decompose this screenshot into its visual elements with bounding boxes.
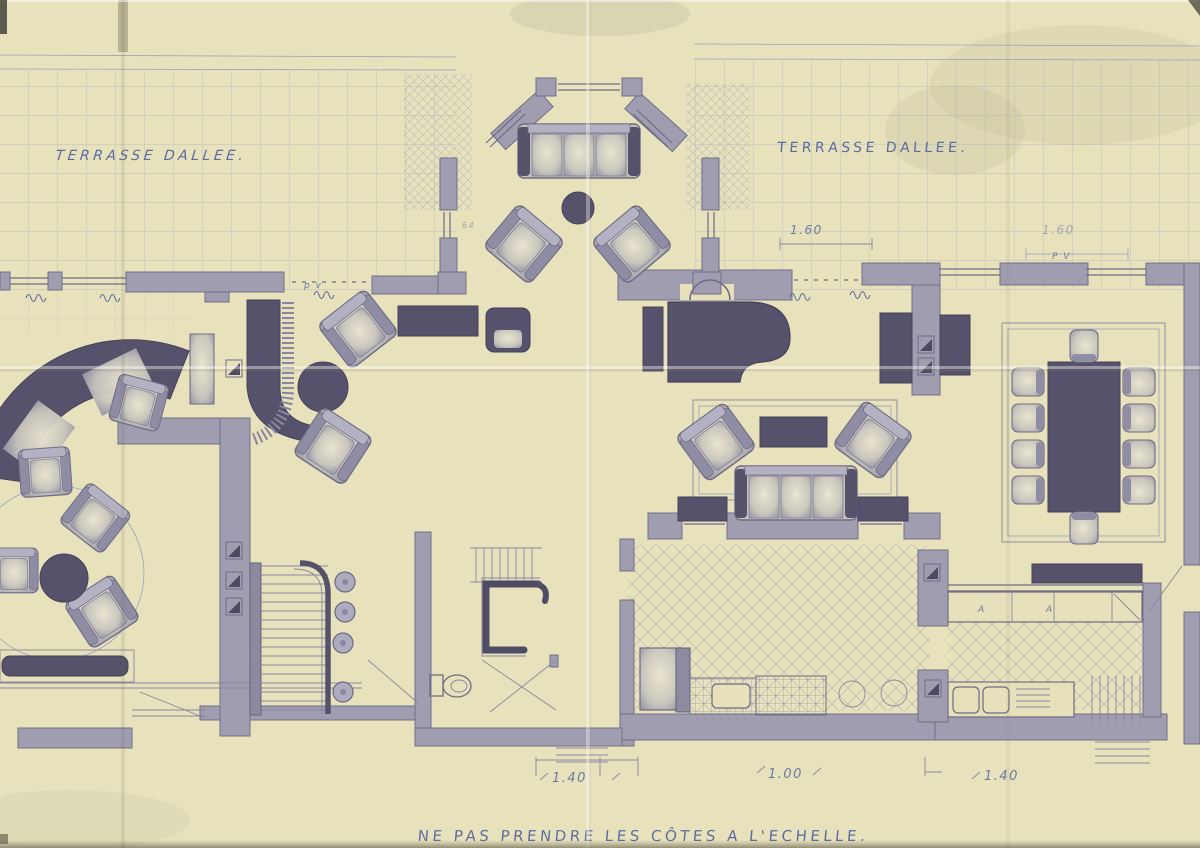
fridge (640, 648, 680, 710)
dining-chair (1070, 512, 1098, 544)
kitchen-sink (712, 684, 750, 708)
dark-armchair (486, 308, 530, 352)
bar-stool (333, 682, 353, 702)
dining-chair (1123, 368, 1155, 396)
mark-cabinet-a1: A (977, 605, 986, 615)
dim-center-opening: 1.00 (768, 767, 803, 782)
dining-chair (1012, 368, 1044, 396)
bay-sofa (518, 124, 640, 178)
bar-stool (333, 633, 353, 653)
dining-chair (1012, 440, 1044, 468)
dining-chair (1123, 404, 1155, 432)
cabinet (880, 313, 912, 383)
center-sofa (735, 466, 857, 520)
dim-left-opening: 1.40 (552, 771, 587, 786)
bar-stool (335, 572, 355, 592)
dim-right-opening: 1.40 (984, 769, 1019, 784)
window-seat-right (858, 497, 908, 521)
dining-chair (1070, 330, 1098, 362)
window-seat-left (678, 497, 727, 521)
drainboard (756, 676, 826, 715)
sideboard (1032, 564, 1142, 583)
armchair (18, 447, 72, 498)
dining-chair (1012, 476, 1044, 504)
dining-chair (1123, 476, 1155, 504)
mark-pv-left: p v (303, 281, 322, 291)
mark-cabinet-a2: A (1045, 605, 1054, 615)
bar-stool (335, 602, 355, 622)
mark-pv-right: P V (1052, 252, 1071, 262)
terrace-right-paving (694, 44, 1200, 290)
coffee-table (760, 417, 827, 447)
dim-bay: 1.60 (790, 223, 823, 237)
terrace-right-label: TERRASSE DALLEE. (777, 140, 970, 156)
piano-side-cabinet (643, 307, 663, 371)
floor-plan-drawing: TERRASSE DALLEE. TERRASSE DALLEE. NE PAS… (0, 0, 1200, 848)
scanned-floor-plan: TERRASSE DALLEE. TERRASSE DALLEE. NE PAS… (0, 0, 1200, 848)
terrace-left-label: TERRASSE DALLEE. (55, 148, 248, 164)
dim-dining: 1.60 (1042, 223, 1075, 237)
dining-chair (1123, 440, 1155, 468)
armchair (0, 548, 38, 593)
sideboard (398, 306, 478, 336)
round-coffee-table (40, 554, 88, 602)
dining-chair (1012, 404, 1044, 432)
mark-bay: 64 (462, 221, 475, 230)
dining-table (1048, 362, 1120, 512)
